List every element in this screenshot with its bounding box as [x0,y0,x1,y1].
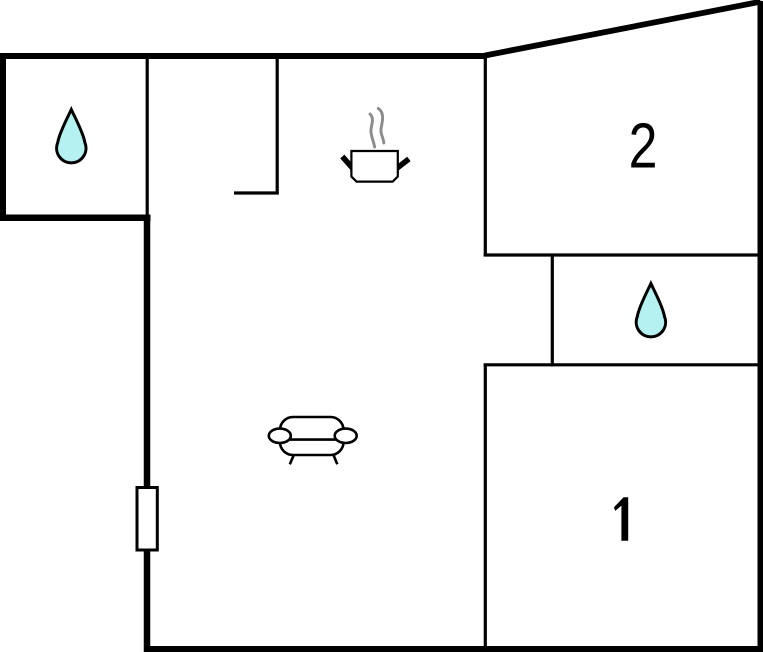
svg-text:2: 2 [629,110,658,181]
